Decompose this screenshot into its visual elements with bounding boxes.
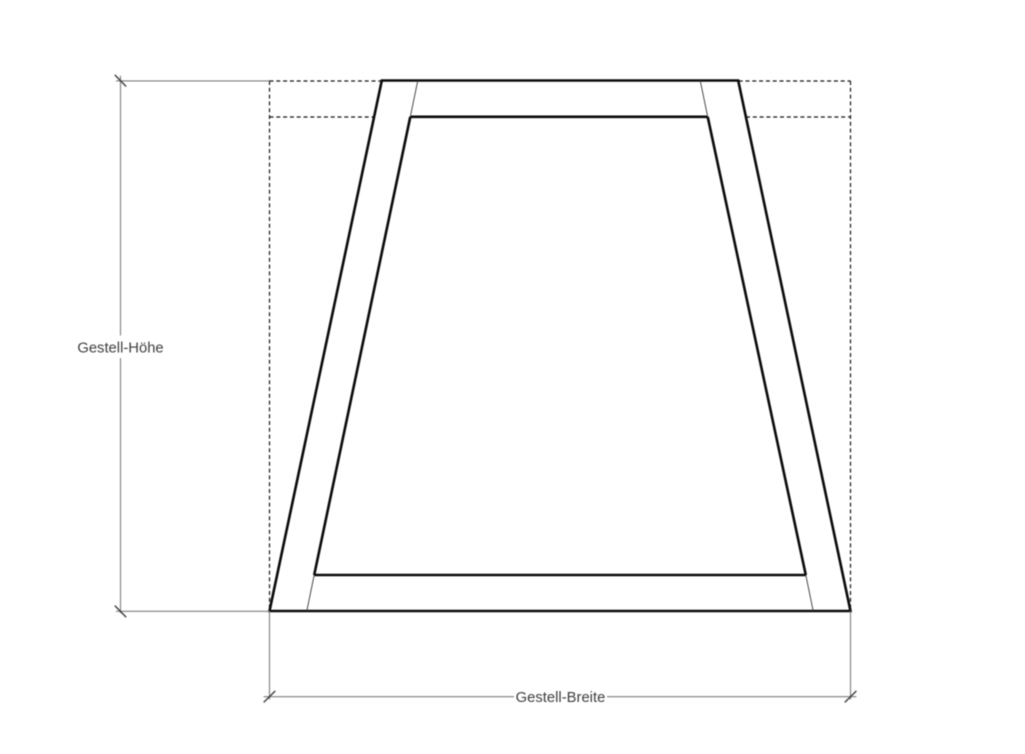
svg-text:Gestell-Höhe: Gestell-Höhe (77, 340, 163, 356)
svg-text:Gestell-Breite: Gestell-Breite (516, 690, 606, 706)
